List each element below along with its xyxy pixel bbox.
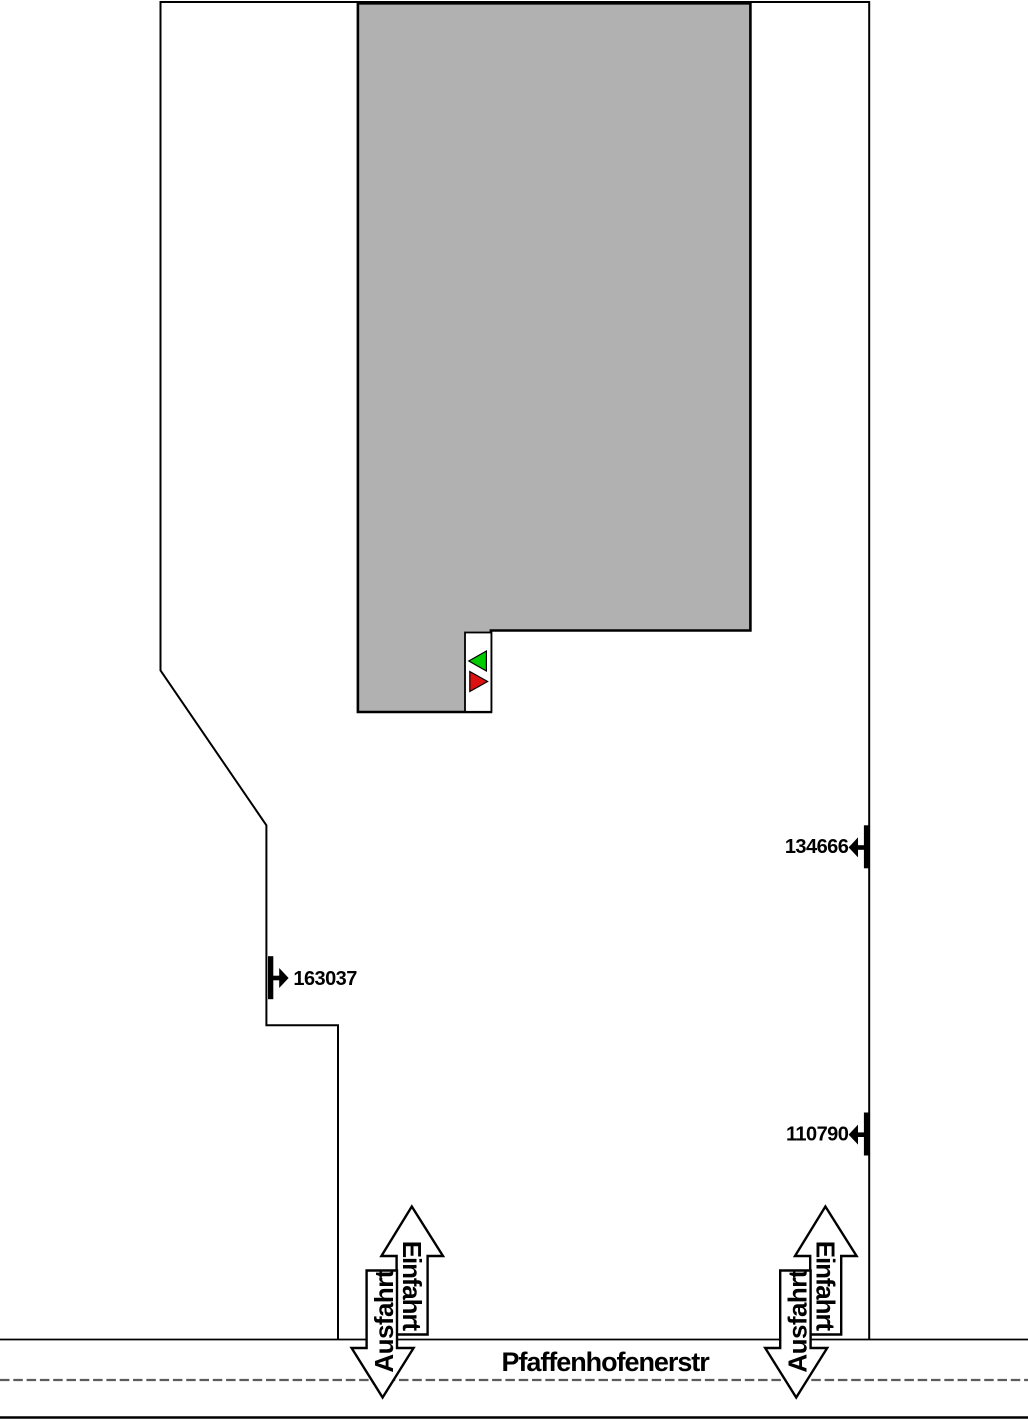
svg-text:Pfaffenhofenerstr: Pfaffenhofenerstr: [502, 1347, 711, 1377]
svg-text:163037: 163037: [293, 968, 357, 990]
svg-text:Ausfahrt: Ausfahrt: [369, 1269, 399, 1372]
svg-text:110790: 110790: [786, 1123, 849, 1145]
svg-text:134666: 134666: [785, 836, 849, 858]
svg-text:Einfahrt: Einfahrt: [397, 1241, 427, 1332]
svg-text:Ausfahrt: Ausfahrt: [782, 1269, 812, 1372]
svg-text:Einfahrt: Einfahrt: [811, 1241, 841, 1332]
